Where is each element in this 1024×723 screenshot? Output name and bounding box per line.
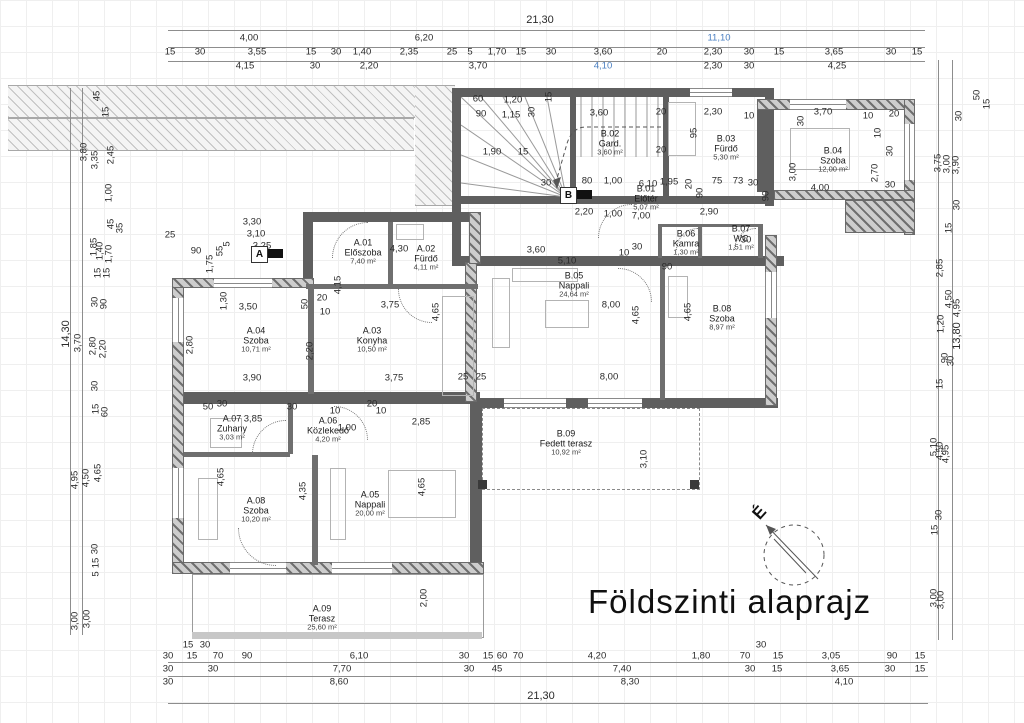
room-code: A.08 — [241, 496, 271, 506]
dimension-label: 10 — [376, 406, 387, 417]
room-label: A.07Zuhany3,03 m² — [217, 414, 247, 443]
furniture — [492, 278, 510, 348]
window — [230, 562, 286, 574]
room-label: B.09Fedett terasz10,92 m² — [540, 429, 593, 458]
dimension-label: 1,40 — [353, 47, 372, 58]
dimension-label: 3,50 — [239, 302, 258, 313]
dimension-label: 21,30 — [527, 690, 555, 702]
dimension-label: 90 — [99, 299, 110, 310]
dimension-label: 70 — [213, 651, 224, 662]
dimension-label: 2,90 — [700, 207, 719, 218]
dimension-label: 50 — [300, 299, 311, 310]
dimension-label: 90 — [761, 191, 772, 202]
room-area: 25,60 m² — [307, 624, 337, 632]
dimension-label: 15 — [774, 47, 785, 58]
dimension-label: 30 — [200, 640, 211, 651]
dimension-label: 3,60 — [527, 245, 546, 256]
wall-hatched — [845, 200, 915, 233]
dimension-label: 3,90 — [951, 156, 962, 175]
dimension-label: 10 — [619, 248, 630, 259]
dimension-label: 7,70 — [333, 664, 352, 675]
dimension-label: 3,10 — [247, 229, 266, 240]
dimension-label: 30 — [527, 107, 538, 118]
dimension-label: 1,00 — [604, 209, 623, 220]
dimension-label: 25 — [165, 230, 176, 241]
room-label: A.02Fürdő4,11 m² — [414, 244, 439, 273]
wall-hatched — [765, 235, 777, 406]
dimension-label: 60 — [473, 94, 484, 105]
dimension-label: 6,20 — [415, 33, 434, 44]
dimension-label: 15 — [935, 379, 946, 390]
terrace-post — [478, 480, 487, 489]
terrace-post — [690, 480, 699, 489]
dimension-label: 1,00 — [604, 176, 623, 187]
dimension-label: 2,20 — [98, 340, 109, 359]
dim-line — [70, 88, 71, 635]
dimension-label: 15 — [544, 92, 555, 103]
dimension-label: 15 — [483, 651, 494, 662]
room-code: A.07 — [217, 414, 247, 424]
room-label: B.03Fürdő5,30 m² — [713, 134, 738, 163]
dimension-label: 3,00 — [788, 163, 799, 182]
room-label: A.01Előszoba7,40 m² — [344, 238, 381, 267]
dimension-label: 3,70 — [73, 334, 84, 353]
dimension-label: 70 — [740, 651, 751, 662]
dimension-label: 30 — [885, 664, 896, 675]
dimension-label: 20 — [889, 109, 900, 120]
dimension-label: 30 — [745, 664, 756, 675]
dimension-label: 4,95 — [941, 445, 952, 464]
dimension-label: 15 — [915, 664, 926, 675]
dimension-label: 3,75 — [385, 373, 404, 384]
dimension-label: 30 — [195, 47, 206, 58]
dimension-label: 30 — [287, 402, 298, 413]
dimension-label: 3,80 — [79, 143, 90, 162]
dimension-label: 30 — [541, 178, 552, 189]
dimension-label: 4,65 — [683, 303, 694, 322]
dimension-label: 45 — [92, 91, 103, 102]
dimension-label: 30 — [632, 242, 643, 253]
dim-line — [168, 703, 928, 704]
room-area: 10,92 m² — [540, 449, 593, 457]
dimension-label: 30 — [796, 116, 807, 127]
dimension-label: 30 — [954, 111, 965, 122]
door-swing — [398, 289, 432, 323]
dimension-label: 30 — [217, 399, 228, 410]
furniture — [396, 224, 424, 240]
room-area: 3,60 m² — [597, 149, 622, 157]
room-label: B.02Gard.3,60 m² — [597, 129, 622, 158]
window — [214, 278, 272, 288]
dimension-label: 15 — [165, 47, 176, 58]
room-label: A.09Terasz25,60 m² — [307, 604, 337, 633]
dimension-label: 4,35 — [298, 482, 309, 501]
dimension-label: 30 — [741, 235, 752, 246]
dimension-label: 15 — [102, 268, 113, 279]
room-code: B.06 — [673, 229, 700, 239]
wall-segment — [470, 404, 482, 574]
dimension-label: 30 — [946, 356, 957, 367]
dimension-label: 30 — [885, 146, 896, 157]
window — [172, 468, 184, 518]
dimension-label: 4,15 — [236, 61, 255, 72]
dimension-label: 75 — [712, 176, 723, 187]
dimension-label: 35 — [115, 223, 126, 234]
plan-title: Földszinti alaprajz — [588, 583, 871, 621]
dimension-label: 90 — [662, 262, 673, 273]
dimension-label: 15 — [915, 651, 926, 662]
dimension-label: 4,65 — [431, 303, 442, 322]
dimension-label: 6,10 — [350, 651, 369, 662]
dimension-label: 20 — [684, 179, 695, 190]
dimension-label: 55 — [215, 246, 226, 257]
dimension-label: 50 — [203, 402, 214, 413]
room-label: B.05Nappali24,64 m² — [559, 271, 590, 300]
dimension-label: 25 — [476, 372, 487, 383]
dimension-label: 2,70 — [870, 164, 881, 183]
room-label: A.03Konyha10,50 m² — [357, 326, 388, 355]
wall-segment — [452, 88, 461, 209]
dimension-label: 5 — [467, 47, 472, 58]
dimension-label: 4,25 — [828, 61, 847, 72]
window — [332, 562, 392, 574]
room-label: A.04Szoba10,71 m² — [241, 326, 271, 355]
dimension-label: 3,05 — [822, 651, 841, 662]
dimension-label: 7,40 — [613, 664, 632, 675]
dimension-label: 30 — [886, 47, 897, 58]
dimension-label: 30 — [459, 651, 470, 662]
dimension-label: 6,10 — [639, 179, 658, 190]
dimension-label: 90 — [191, 246, 202, 257]
room-label: A.05Nappali20,00 m² — [355, 490, 386, 519]
dimension-label: 10 — [863, 111, 874, 122]
dimension-label: 20 — [657, 47, 668, 58]
room-label: B.08Szoba8,97 m² — [709, 304, 735, 333]
wall-hatched — [172, 562, 484, 574]
dimension-label: 4,65 — [417, 478, 428, 497]
dimension-label: 20 — [656, 107, 667, 118]
north-compass-icon — [752, 511, 832, 593]
dimension-label: 14,30 — [60, 320, 72, 348]
dimension-label: 1,20 — [936, 315, 947, 334]
dimension-label: 8,60 — [330, 677, 349, 688]
dimension-label: 4,10 — [594, 61, 613, 72]
window — [504, 398, 566, 408]
dimension-label: 15 — [91, 558, 102, 569]
dimension-label: 3,75 — [381, 300, 400, 311]
dimension-label: 4,95 — [70, 471, 81, 490]
section-marker-flag-icon — [268, 249, 283, 258]
dimension-label: 30 — [744, 47, 755, 58]
room-area: 20,00 m² — [355, 510, 386, 518]
room-code: A.03 — [357, 326, 388, 336]
room-area: 10,50 m² — [357, 346, 388, 354]
dimension-label: 5 — [222, 241, 233, 246]
dimension-label: 2,80 — [185, 336, 196, 355]
dimension-label: 2,20 — [305, 342, 316, 361]
room-code: B.07 — [728, 224, 753, 234]
dimension-label: 4,00 — [811, 183, 830, 194]
room-area: 1,30 m² — [673, 249, 700, 257]
window — [765, 272, 777, 318]
dimension-label: 8,30 — [621, 677, 640, 688]
dimension-label: 30 — [952, 200, 963, 211]
dimension-label: 15 — [187, 651, 198, 662]
dimension-label: 60 — [100, 407, 111, 418]
room-area: 12,00 m² — [818, 166, 848, 174]
dimension-label: 25 — [447, 47, 458, 58]
dimension-label: 11,10 — [707, 33, 730, 44]
terrace-edge — [192, 632, 482, 639]
dimension-label: 2,85 — [935, 259, 946, 278]
site-hatch-strip — [415, 85, 455, 206]
dimension-label: 30 — [310, 61, 321, 72]
dimension-label: 4,20 — [588, 651, 607, 662]
dimension-label: 15 — [982, 99, 993, 110]
dimension-label: 5 — [91, 571, 102, 576]
dimension-label: 1,30 — [219, 292, 230, 311]
dimension-label: 3,00 — [936, 591, 947, 610]
dimension-label: 30 — [163, 664, 174, 675]
room-code: A.05 — [355, 490, 386, 500]
dimension-label: 30 — [934, 510, 945, 521]
dimension-label: 2,30 — [704, 47, 723, 58]
dimension-label: 4,30 — [390, 244, 409, 255]
floorplan-canvas: A.01Előszoba7,40 m²A.02Fürdő4,11 m²A.03K… — [0, 0, 1024, 723]
section-marker-flag-icon — [577, 190, 592, 199]
dimension-label: 3,10 — [639, 450, 650, 469]
dimension-label: 15 — [944, 223, 955, 234]
partition-wall — [658, 224, 662, 258]
room-area: 5,30 m² — [713, 154, 738, 162]
dimension-label: 15 — [183, 640, 194, 651]
dimension-label: 30 — [546, 47, 557, 58]
dimension-label: 4,10 — [835, 677, 854, 688]
furniture — [198, 478, 218, 540]
dimension-label: 4,65 — [216, 468, 227, 487]
dimension-label: 1,70 — [488, 47, 507, 58]
dimension-label: 10 — [873, 128, 884, 139]
dimension-label: 4,65 — [631, 306, 642, 325]
dimension-label: 8,00 — [600, 372, 619, 383]
dimension-label: 1,00 — [338, 423, 357, 434]
dimension-label: 45 — [492, 664, 503, 675]
room-code: A.01 — [344, 238, 381, 248]
dimension-label: 20 — [656, 145, 667, 156]
dimension-label: 3,60 — [594, 47, 613, 58]
dimension-label: 1,70 — [104, 245, 115, 264]
dimension-label: 4,15 — [333, 276, 344, 295]
section-marker-letter: B — [560, 187, 577, 204]
wall-segment — [303, 212, 313, 286]
dimension-label: 60 — [497, 651, 508, 662]
door-swing — [252, 420, 286, 454]
dimension-label: 25 — [458, 372, 469, 383]
dimension-label: 4,95 — [952, 299, 963, 318]
dimension-label: 3,00 — [82, 610, 93, 629]
dimension-label: 15 — [930, 525, 941, 536]
room-code: A.02 — [414, 244, 439, 254]
room-area: 3,03 m² — [217, 434, 247, 442]
dimension-label: 4,65 — [93, 464, 104, 483]
wall-segment — [303, 212, 481, 222]
room-area: 24,64 m² — [559, 291, 590, 299]
dimension-label: 3,55 — [248, 47, 267, 58]
dimension-label: 3,70 — [814, 107, 833, 118]
dimension-label: 10 — [320, 307, 331, 318]
dim-line — [168, 61, 925, 62]
dimension-label: 1,75 — [205, 255, 216, 274]
window — [172, 298, 184, 342]
dimension-label: 2,00 — [419, 589, 430, 608]
dim-line — [82, 88, 83, 635]
dimension-label: 5,10 — [558, 256, 577, 267]
furniture — [545, 300, 589, 328]
dimension-label: 15 — [518, 147, 529, 158]
dimension-label: 30 — [748, 178, 759, 189]
dim-line — [168, 662, 928, 663]
furniture — [330, 468, 346, 540]
dimension-label: 1,00 — [104, 184, 115, 203]
dimension-label: 1,80 — [692, 651, 711, 662]
dimension-label: 4,50 — [81, 469, 92, 488]
window — [588, 398, 642, 408]
dimension-label: 3,30 — [243, 217, 262, 228]
dimension-label: 30 — [331, 47, 342, 58]
dim-line — [168, 30, 925, 31]
wall-segment — [184, 392, 480, 404]
dimension-label: 90 — [887, 651, 898, 662]
dimension-label: 30 — [464, 664, 475, 675]
dimension-label: 30 — [90, 381, 101, 392]
room-code: B.08 — [709, 304, 735, 314]
dimension-label: 15 — [773, 651, 784, 662]
dimension-label: 1,15 — [502, 110, 521, 121]
dim-line — [168, 676, 928, 677]
dimension-label: 13,80 — [951, 322, 963, 350]
partition-wall — [312, 455, 318, 565]
dimension-label: 30 — [163, 651, 174, 662]
room-code: A.09 — [307, 604, 337, 614]
dimension-label: 15 — [772, 664, 783, 675]
room-area: 4,20 m² — [307, 436, 349, 444]
room-area: 10,20 m² — [241, 516, 271, 524]
dimension-label: 90 — [242, 651, 253, 662]
window — [904, 124, 915, 180]
room-code: B.09 — [540, 429, 593, 439]
dimension-label: 2,30 — [704, 61, 723, 72]
dimension-label: 1,90 — [483, 147, 502, 158]
dimension-label: 1,20 — [504, 95, 523, 106]
dimension-label: 30 — [885, 180, 896, 191]
dimension-label: 15 — [912, 47, 923, 58]
dimension-label: 2,85 — [412, 417, 431, 428]
dimension-label: 8,00 — [602, 300, 621, 311]
dimension-label: 10 — [744, 111, 755, 122]
room-area: 8,97 m² — [709, 324, 735, 332]
dimension-label: 30 — [90, 544, 101, 555]
room-label: B.04Szoba12,00 m² — [818, 146, 848, 175]
dimension-label: 3,85 — [244, 414, 263, 425]
dimension-label: 3,65 — [831, 664, 850, 675]
room-label: A.08Szoba10,20 m² — [241, 496, 271, 525]
door-swing — [618, 268, 652, 302]
dimension-label: 30 — [208, 664, 219, 675]
dimension-label: 10 — [330, 406, 341, 417]
dimension-label: 90 — [695, 188, 706, 199]
dimension-label: 95 — [689, 128, 700, 139]
dimension-label: 3,00 — [70, 612, 81, 631]
dimension-label: 3,65 — [825, 47, 844, 58]
wall-hatched — [469, 212, 481, 264]
dimension-label: 3,90 — [243, 373, 262, 384]
site-hatch-strip — [8, 118, 414, 151]
dimension-label: 2,35 — [400, 47, 419, 58]
dimension-label: 2,20 — [360, 61, 379, 72]
dimension-label: 3,35 — [90, 151, 101, 170]
dimension-label: 21,30 — [526, 14, 554, 26]
door-swing — [238, 528, 276, 566]
dimension-label: 20 — [317, 293, 328, 304]
dimension-label: 1,95 — [660, 177, 679, 188]
dim-line — [938, 60, 939, 640]
window — [690, 88, 732, 97]
room-code: B.05 — [559, 271, 590, 281]
room-label: B.06Kamra1,30 m² — [673, 229, 700, 258]
dimension-label: 15 — [101, 107, 112, 118]
room-code: A.04 — [241, 326, 271, 336]
room-area: 4,11 m² — [414, 264, 439, 272]
dimension-label: 90 — [476, 109, 487, 120]
wall-segment — [757, 99, 766, 192]
dimension-label: 30 — [744, 61, 755, 72]
partition-wall — [660, 266, 665, 400]
terrace-outline — [192, 574, 484, 638]
dim-line — [952, 60, 953, 640]
dimension-label: 2,45 — [106, 146, 117, 165]
room-code: B.04 — [818, 146, 848, 156]
dimension-label: 70 — [513, 651, 524, 662]
dimension-label: 15 — [306, 47, 317, 58]
dimension-label: 2,20 — [575, 207, 594, 218]
wall-hatched — [774, 190, 915, 200]
dimension-label: 7,00 — [632, 211, 651, 222]
dimension-label: 3,70 — [469, 61, 488, 72]
partition-wall — [758, 224, 763, 258]
room-area: 10,71 m² — [241, 346, 271, 354]
dimension-label: 30 — [756, 640, 767, 651]
dimension-label: 3,60 — [590, 108, 609, 119]
dimension-label: 2,30 — [704, 107, 723, 118]
room-code: B.03 — [713, 134, 738, 144]
dimension-label: 73 — [733, 176, 744, 187]
section-marker-letter: A — [251, 246, 268, 263]
dimension-label: 15 — [516, 47, 527, 58]
dimension-label: 4,00 — [240, 33, 259, 44]
room-code: B.02 — [597, 129, 622, 139]
dimension-label: 30 — [163, 677, 174, 688]
dimension-label: 80 — [582, 176, 593, 187]
room-area: 7,40 m² — [344, 258, 381, 266]
